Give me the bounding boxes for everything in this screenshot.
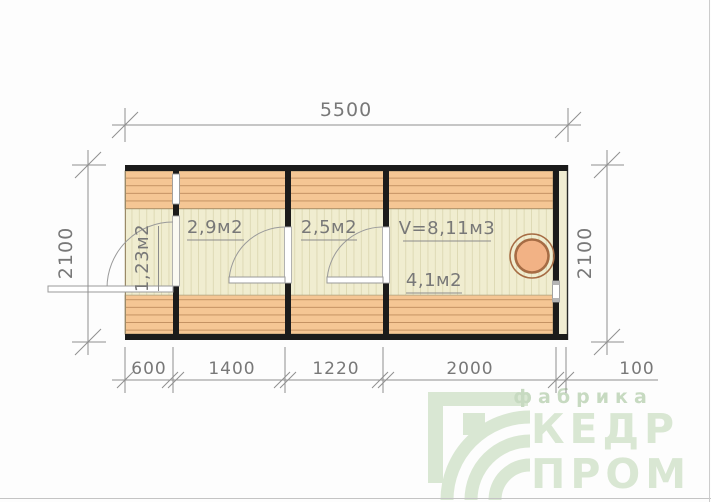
top-deck-band (125, 171, 553, 209)
floor-plan-svg: фабрика КЕДР ПРОМ (0, 0, 711, 502)
dim-bottom-1220: 1220 (312, 359, 359, 379)
door-leaf-room2 (229, 277, 285, 283)
partition-2-3 (285, 171, 292, 334)
top-wall (125, 165, 568, 171)
dim-bottom-2000: 2000 (446, 359, 493, 379)
door-opening-3 (383, 227, 390, 283)
stove-inner-circle (516, 240, 549, 273)
watermark-logo: фабрика КЕДР ПРОМ (428, 386, 691, 500)
partition-1-2 (173, 171, 180, 334)
dim-bottom-600: 600 (131, 359, 166, 379)
bottom-wall (125, 334, 568, 340)
screenshot-canvas: фабрика КЕДР ПРОМ (0, 0, 711, 502)
dim-top-value: 5500 (320, 99, 372, 121)
right-end-strip (559, 171, 567, 334)
room3-area-label: 2,5м2 (301, 217, 357, 238)
room4-area-label: 4,1м2 (406, 270, 462, 291)
partition-3-4 (383, 171, 390, 334)
dim-left-value: 2100 (55, 227, 77, 279)
stove (510, 234, 554, 278)
dim-bottom-1400: 1400 (208, 359, 255, 379)
room2-area-label: 2,9м2 (187, 217, 243, 238)
door-leaf-room3 (327, 277, 383, 283)
room4-volume-label: V=8,11м3 (399, 218, 496, 239)
dim-right-value: 2100 (574, 227, 596, 279)
door-opening-1 (173, 216, 180, 286)
watermark-line2: ПРОМ (531, 450, 691, 498)
building-plan: 1,23м2 2,9м2 2,5м2 V=8,11м3 4,1м2 (48, 165, 568, 340)
room1-area-label: 1,23м2 (132, 224, 153, 292)
bottom-deck-band (125, 295, 553, 334)
entry-door-leaf (48, 286, 173, 292)
watermark-line1: КЕДР (531, 405, 679, 453)
partition-window (173, 174, 180, 204)
door-opening-2 (285, 227, 292, 283)
dim-bottom-100: 100 (619, 359, 654, 379)
